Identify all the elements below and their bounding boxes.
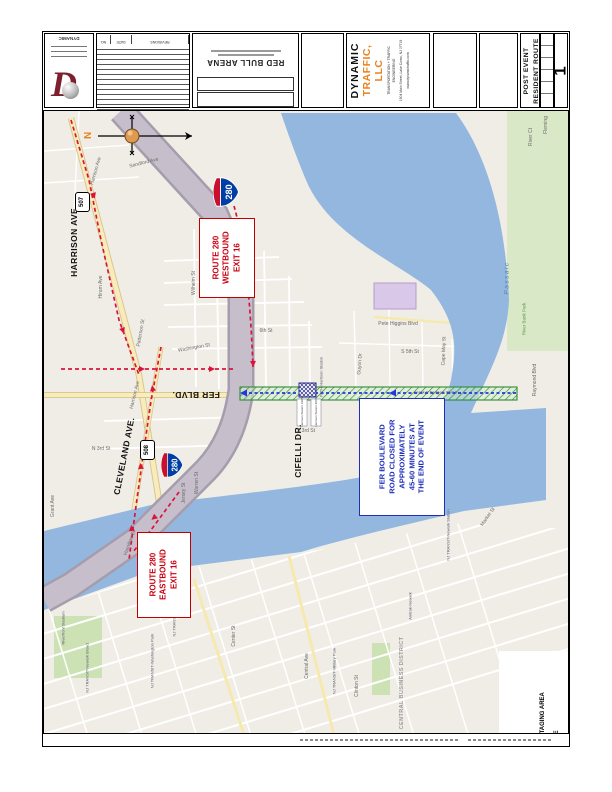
legend-title: LEGEND	[502, 651, 519, 734]
map-label: Riverfront Stadium	[61, 611, 66, 644]
firm-info-block: DYNAMIC TRAFFIC, LLC TRANSPORTATION + TR…	[346, 33, 430, 108]
map-attribution-fineprint	[300, 739, 460, 741]
plan-sheet: DYNAMIC D REVISIONS DATE NO. RED BULL AR…	[0, 0, 612, 792]
map-label: Clinton St	[354, 675, 360, 697]
military-park-area	[372, 643, 390, 695]
firm-website: www.dynamictraffic.com	[406, 36, 411, 105]
legend: LEGEND RESIDENT STAGING AREA (NEXT TO WE…	[502, 651, 569, 734]
firm-name-line2: TRAFFIC, LLC	[361, 36, 385, 105]
map-attribution-fineprint	[468, 739, 552, 741]
map-label: Grant Ave	[50, 495, 56, 517]
map-label: PATH-Harrison Station	[319, 357, 324, 397]
map-label: HARRISON AVE.	[69, 205, 79, 277]
map-label: Amtrak-Newark	[408, 592, 413, 620]
firm-name-line1: DYNAMIC	[349, 36, 361, 105]
map-label: NJ TRANSIT-Newark Station	[446, 509, 451, 560]
map-label: Passaic	[504, 261, 511, 294]
logo-sphere-icon	[62, 82, 79, 99]
project-title-block: RED BULL ARENA	[192, 33, 299, 108]
map-label: Harrison Station 199	[300, 399, 304, 426]
legend-item: ROAD CLOSURE	[566, 651, 569, 734]
route-508-shield-icon: 508	[140, 440, 155, 460]
riverbank-park-area	[507, 111, 569, 351]
map-label: Cape May St	[440, 336, 447, 365]
map-label: 6th St	[259, 328, 272, 334]
revision-header: NO.	[96, 35, 111, 44]
map-label: Fleming	[543, 116, 549, 134]
map-label: S 3rd St	[297, 428, 315, 434]
map-label: CENTRAL BUSINESS DISTRICT	[399, 637, 405, 730]
sheet-title: POST EVENT RESIDENT ROUTE	[522, 36, 538, 106]
revision-header: REVISIONS	[132, 35, 189, 44]
legend-item: POLICE ESCORT ROUTE	[552, 651, 562, 734]
map-label: River Ct	[528, 128, 534, 146]
map-label: S 5th St	[401, 349, 419, 355]
svg-text:280: 280	[170, 458, 179, 472]
project-title: RED BULL ARENA	[193, 58, 298, 67]
firm-tagline: TRANSPORTATION + TRAFFIC ENGINEERING	[387, 36, 397, 105]
map-label: Wilhelm St	[191, 271, 197, 295]
resident-staging-area	[299, 383, 316, 397]
revision-table: REVISIONS DATE NO.	[96, 33, 190, 108]
sheet-title-block: POST EVENT RESIDENT ROUTE	[520, 33, 540, 108]
map-label: Harrison Station 900	[314, 399, 318, 426]
route-280-westbound-callout: ROUTE 280 WESTBOUND EXIT 16	[199, 218, 255, 298]
compass-north-label: N	[83, 132, 94, 139]
route-507-shield-icon: 507	[75, 192, 90, 212]
map-label: River Bank Park	[522, 303, 527, 336]
logo-brand-text: DYNAMIC	[49, 36, 89, 41]
title-subbox	[197, 77, 294, 91]
route-280-eastbound-callout: ROUTE 280 EASTBOUND EXIT 16	[137, 532, 191, 618]
revision-header: DATE	[111, 35, 132, 44]
map-label: Warren St	[194, 472, 200, 494]
map-label: NJ TRANSIT-Military Park	[332, 648, 337, 694]
arena-building	[374, 283, 416, 309]
title-subbox	[197, 92, 294, 107]
legend-item: RESIDENT STAGING AREA (NEXT TO WENDY'S &…	[522, 651, 534, 734]
map-label: Center St	[231, 625, 237, 646]
map-label: Jersey St	[181, 483, 187, 504]
svg-text:280: 280	[224, 184, 234, 199]
sheet-number-block: 1	[554, 33, 568, 108]
map-label: Central Ave	[304, 653, 310, 679]
firm-logo-block: DYNAMIC D	[44, 33, 94, 108]
map-label: NJ TRANSIT-Washington Park	[150, 634, 155, 688]
legend-item: RESIDENT ROUTE TO STAGING AREA	[538, 651, 548, 734]
interstate-280-shield-icon: 280	[161, 452, 183, 478]
sheet-number: 1	[551, 66, 571, 75]
map-label: Hiram Ave	[98, 276, 104, 299]
fer-boulevard-closure-callout: FER BOULEVARD ROAD CLOSED FOR APPROXIMAT…	[359, 398, 445, 516]
map-label: Frank E Rodgers Blvd S	[415, 390, 458, 395]
blank-title-box	[301, 33, 344, 108]
blank-title-box	[433, 33, 477, 108]
map-label: NJ TRANSIT-Newark Broad	[85, 643, 90, 693]
map-label: Pete Higgins Blvd	[378, 321, 417, 327]
map-label: Raymond Blvd	[532, 364, 538, 397]
map-label: FER BLVD.	[172, 390, 220, 400]
blank-title-box	[479, 33, 518, 108]
firm-address: 1904 Main Street, Lake Como, NJ 07719	[399, 36, 404, 105]
interstate-280-shield-icon: 280	[213, 177, 239, 207]
traffic-plan-map: N Sandford AveHarrison AveHARRISON AVE.C…	[43, 110, 569, 734]
map-geometry: N	[44, 111, 569, 734]
map-label: N 3rd St	[92, 446, 110, 452]
